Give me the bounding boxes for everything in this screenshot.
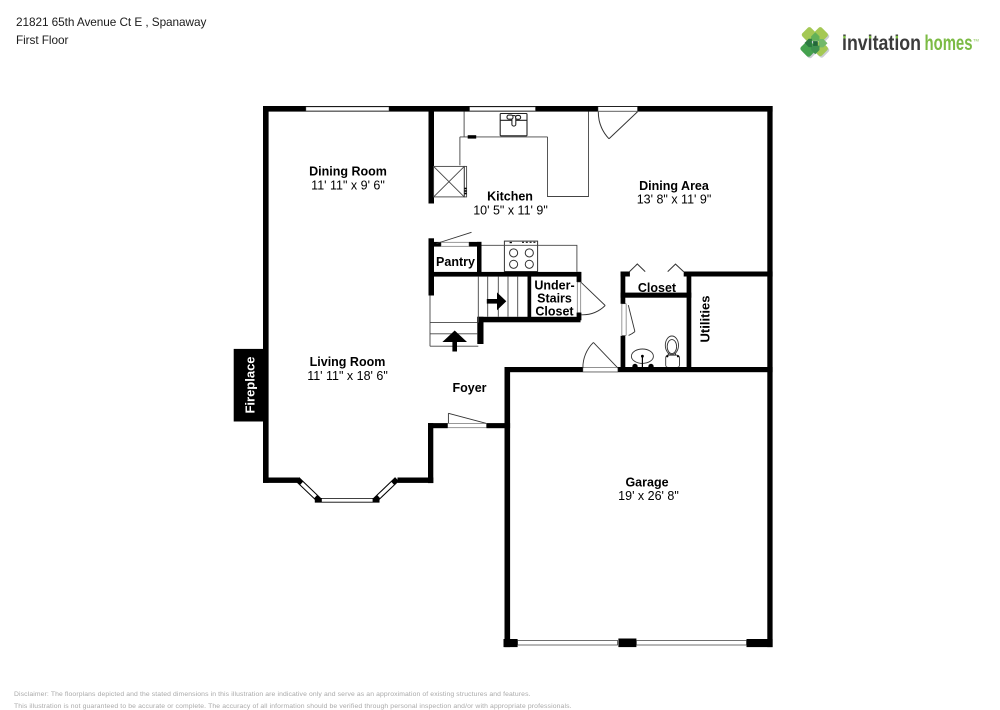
svg-text:Living Room: Living Room: [310, 355, 386, 369]
svg-text:Dining Room: Dining Room: [309, 165, 387, 179]
svg-text:Fireplace: Fireplace: [243, 356, 258, 413]
svg-text:Under-: Under-: [534, 279, 574, 293]
svg-text:Pantry: Pantry: [436, 255, 475, 269]
svg-text:19' x 26' 8": 19' x 26' 8": [618, 489, 679, 503]
svg-text:13' 8" x 11' 9": 13' 8" x 11' 9": [637, 193, 712, 207]
svg-text:10' 5" x 11' 9": 10' 5" x 11' 9": [473, 204, 548, 218]
svg-text:Dining Area: Dining Area: [639, 179, 710, 193]
svg-text:Garage: Garage: [625, 476, 668, 490]
svg-text:Closet: Closet: [638, 281, 677, 295]
svg-text:Stairs: Stairs: [537, 292, 572, 306]
svg-text:11' 11" x 18' 6": 11' 11" x 18' 6": [307, 369, 388, 383]
svg-text:Closet: Closet: [535, 305, 574, 319]
svg-text:11' 11" x 9' 6": 11' 11" x 9' 6": [311, 179, 385, 193]
svg-text:Utilities: Utilities: [698, 296, 713, 343]
svg-text:Kitchen: Kitchen: [487, 190, 533, 204]
svg-text:Foyer: Foyer: [452, 381, 486, 395]
